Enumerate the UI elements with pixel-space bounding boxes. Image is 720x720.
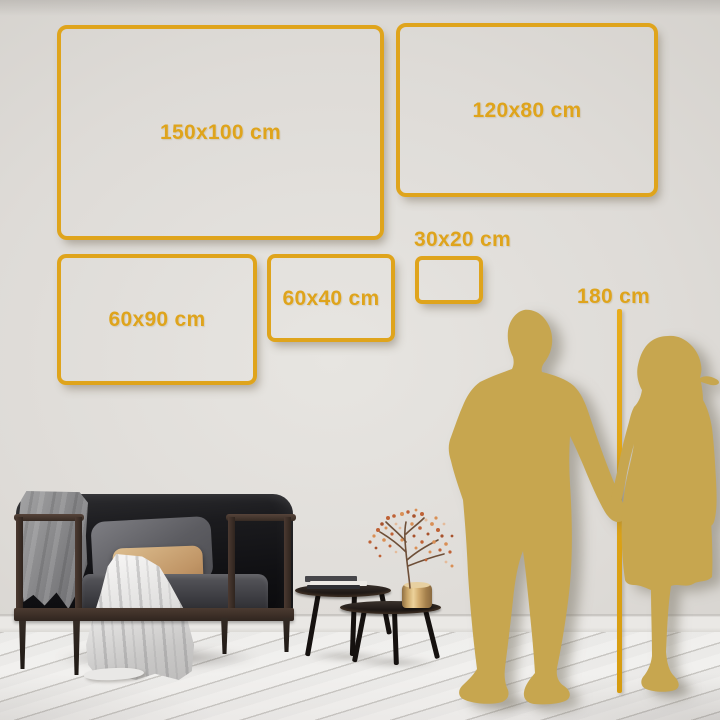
size-label-60x90: 60x90 cm	[109, 309, 206, 330]
sofa-wood-post	[284, 517, 291, 617]
size-label-30x20: 30x20 cm	[414, 229, 511, 250]
sofa-base-rail	[14, 608, 294, 621]
man-silhouette-icon	[449, 310, 626, 705]
size-label-150x100: 150x100 cm	[160, 122, 281, 143]
size-frame-60x90: 60x90 cm	[57, 254, 257, 385]
sofa-wood-post	[16, 517, 23, 617]
sofa-wood-rail	[14, 514, 84, 521]
sofa-wood-post	[228, 517, 235, 617]
size-frame-30x20	[415, 256, 483, 304]
size-guide-scene: 150x100 cm 120x80 cm 60x90 cm 60x40 cm 3…	[0, 0, 720, 720]
woman-silhouette-icon	[610, 336, 719, 692]
size-frame-150x100: 150x100 cm	[57, 25, 384, 240]
size-frame-60x40: 60x40 cm	[267, 254, 395, 342]
sofa-wood-post	[75, 517, 82, 619]
book	[307, 585, 360, 589]
couple-silhouettes	[440, 302, 720, 710]
size-label-120x80: 120x80 cm	[473, 100, 582, 121]
size-label-60x40: 60x40 cm	[283, 288, 380, 309]
size-frame-120x80: 120x80 cm	[396, 23, 658, 197]
